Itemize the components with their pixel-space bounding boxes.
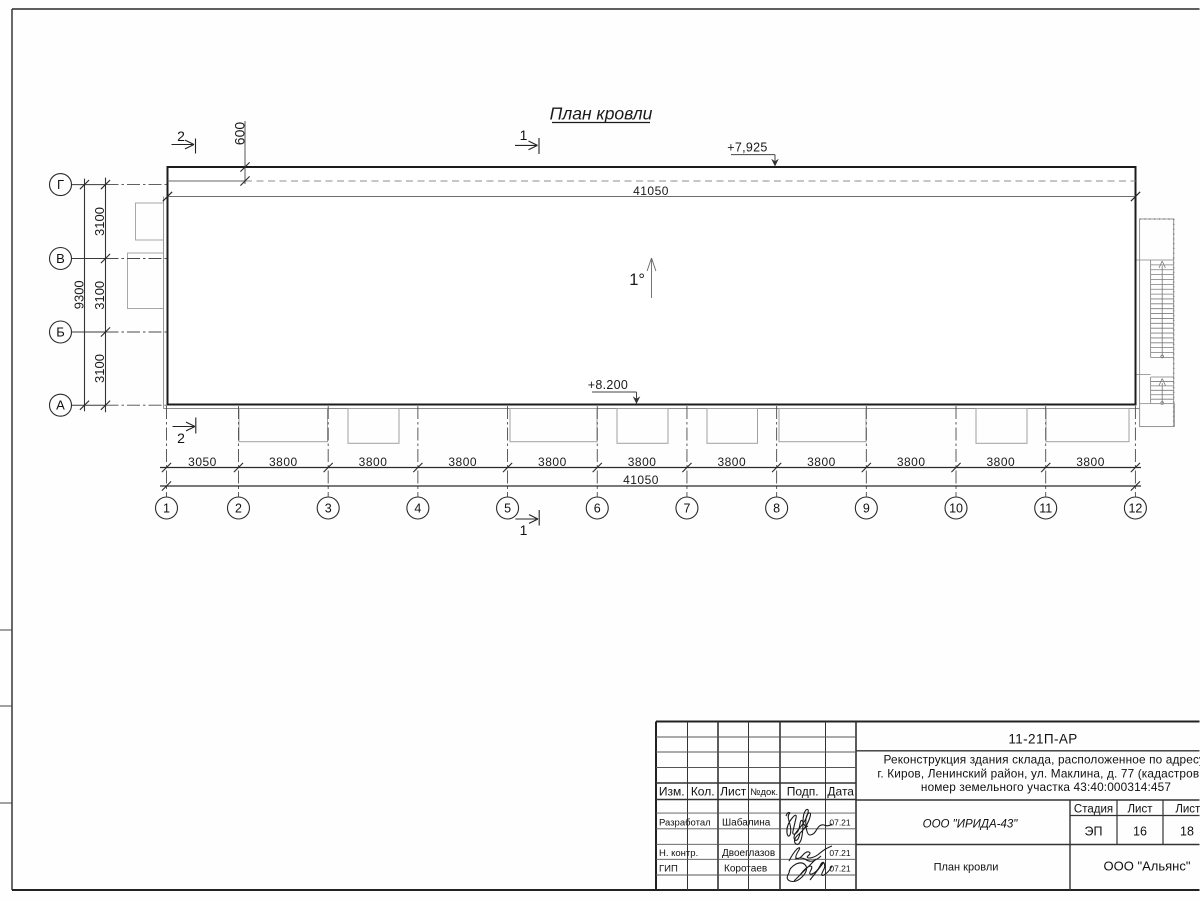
svg-text:8: 8 xyxy=(773,502,780,516)
svg-text:ООО "Альянс": ООО "Альянс" xyxy=(1104,859,1191,874)
svg-text:16: 16 xyxy=(1133,825,1147,839)
svg-text:41050: 41050 xyxy=(633,184,669,198)
svg-text:План кровли: План кровли xyxy=(550,104,653,124)
svg-text:12: 12 xyxy=(1128,502,1142,516)
svg-text:Кол.: Кол. xyxy=(691,785,715,799)
svg-text:Двоеглазов: Двоеглазов xyxy=(722,848,775,859)
svg-text:+8.200: +8.200 xyxy=(588,378,628,392)
svg-text:Шабалина: Шабалина xyxy=(722,817,771,829)
svg-text:г. Киров, Ленинский район, ул.: г. Киров, Ленинский район, ул. Маклина, … xyxy=(877,767,1200,781)
svg-text:07.21: 07.21 xyxy=(829,864,851,874)
svg-text:3800: 3800 xyxy=(269,455,298,469)
svg-text:3800: 3800 xyxy=(538,455,567,469)
svg-text:07.21: 07.21 xyxy=(829,848,851,858)
svg-text:Изм.: Изм. xyxy=(659,785,685,799)
svg-text:3800: 3800 xyxy=(359,455,388,469)
svg-text:9: 9 xyxy=(863,502,870,516)
svg-text:Реконструкция здания склада, р: Реконструкция здания склада, расположенн… xyxy=(884,753,1200,767)
svg-text:4: 4 xyxy=(414,502,421,516)
svg-text:Лист: Лист xyxy=(720,785,747,799)
svg-text:07.21: 07.21 xyxy=(829,818,851,828)
svg-text:2: 2 xyxy=(235,502,242,516)
svg-text:Н. контр.: Н. контр. xyxy=(659,848,698,859)
svg-text:Дата: Дата xyxy=(827,785,854,799)
svg-text:9300: 9300 xyxy=(71,280,86,309)
svg-text:+7,925: +7,925 xyxy=(727,141,767,155)
svg-text:№док.: №док. xyxy=(750,787,778,798)
svg-text:11-21П-АР: 11-21П-АР xyxy=(1008,732,1077,747)
svg-text:Лист: Лист xyxy=(1128,804,1154,816)
svg-text:А: А xyxy=(56,398,65,413)
svg-text:7: 7 xyxy=(683,502,690,516)
svg-text:6: 6 xyxy=(594,502,601,516)
svg-text:5: 5 xyxy=(504,502,511,516)
svg-text:ГИП: ГИП xyxy=(659,864,678,875)
svg-text:1: 1 xyxy=(163,502,170,516)
svg-text:3800: 3800 xyxy=(628,455,657,469)
svg-text:1: 1 xyxy=(520,127,528,143)
svg-text:Г: Г xyxy=(57,177,64,192)
svg-text:11: 11 xyxy=(1039,502,1052,516)
svg-text:3800: 3800 xyxy=(448,455,477,469)
svg-text:2: 2 xyxy=(177,430,185,446)
svg-text:3800: 3800 xyxy=(807,455,836,469)
svg-text:3800: 3800 xyxy=(1076,455,1105,469)
svg-text:3800: 3800 xyxy=(897,455,926,469)
svg-text:В: В xyxy=(56,251,65,266)
svg-text:План кровли: План кровли xyxy=(934,862,999,874)
svg-text:Листов: Листов xyxy=(1175,804,1200,816)
svg-text:2: 2 xyxy=(177,128,185,144)
svg-text:ООО "ИРИДА-43": ООО "ИРИДА-43" xyxy=(923,819,1019,831)
svg-text:3050: 3050 xyxy=(188,455,217,469)
svg-text:ЭП: ЭП xyxy=(1085,825,1103,839)
svg-text:3100: 3100 xyxy=(92,354,107,383)
svg-text:3100: 3100 xyxy=(92,281,107,310)
svg-text:номер земельного участка 43:40: номер земельного участка 43:40:000314:45… xyxy=(921,780,1171,794)
svg-text:41050: 41050 xyxy=(623,473,659,487)
svg-text:18: 18 xyxy=(1180,825,1194,839)
svg-text:Подп.: Подп. xyxy=(787,785,819,799)
svg-text:1°: 1° xyxy=(629,271,645,289)
svg-text:Стадия: Стадия xyxy=(1074,804,1113,816)
svg-text:10: 10 xyxy=(949,502,963,516)
svg-text:600: 600 xyxy=(231,122,247,146)
svg-text:Б: Б xyxy=(56,325,65,340)
svg-text:3800: 3800 xyxy=(987,455,1016,469)
svg-text:1: 1 xyxy=(520,522,528,538)
svg-text:3100: 3100 xyxy=(92,207,107,236)
svg-text:3800: 3800 xyxy=(717,455,746,469)
svg-text:3: 3 xyxy=(325,502,332,516)
svg-text:Разработал: Разработал xyxy=(659,818,711,829)
svg-text:Коротаев: Коротаев xyxy=(724,864,767,875)
